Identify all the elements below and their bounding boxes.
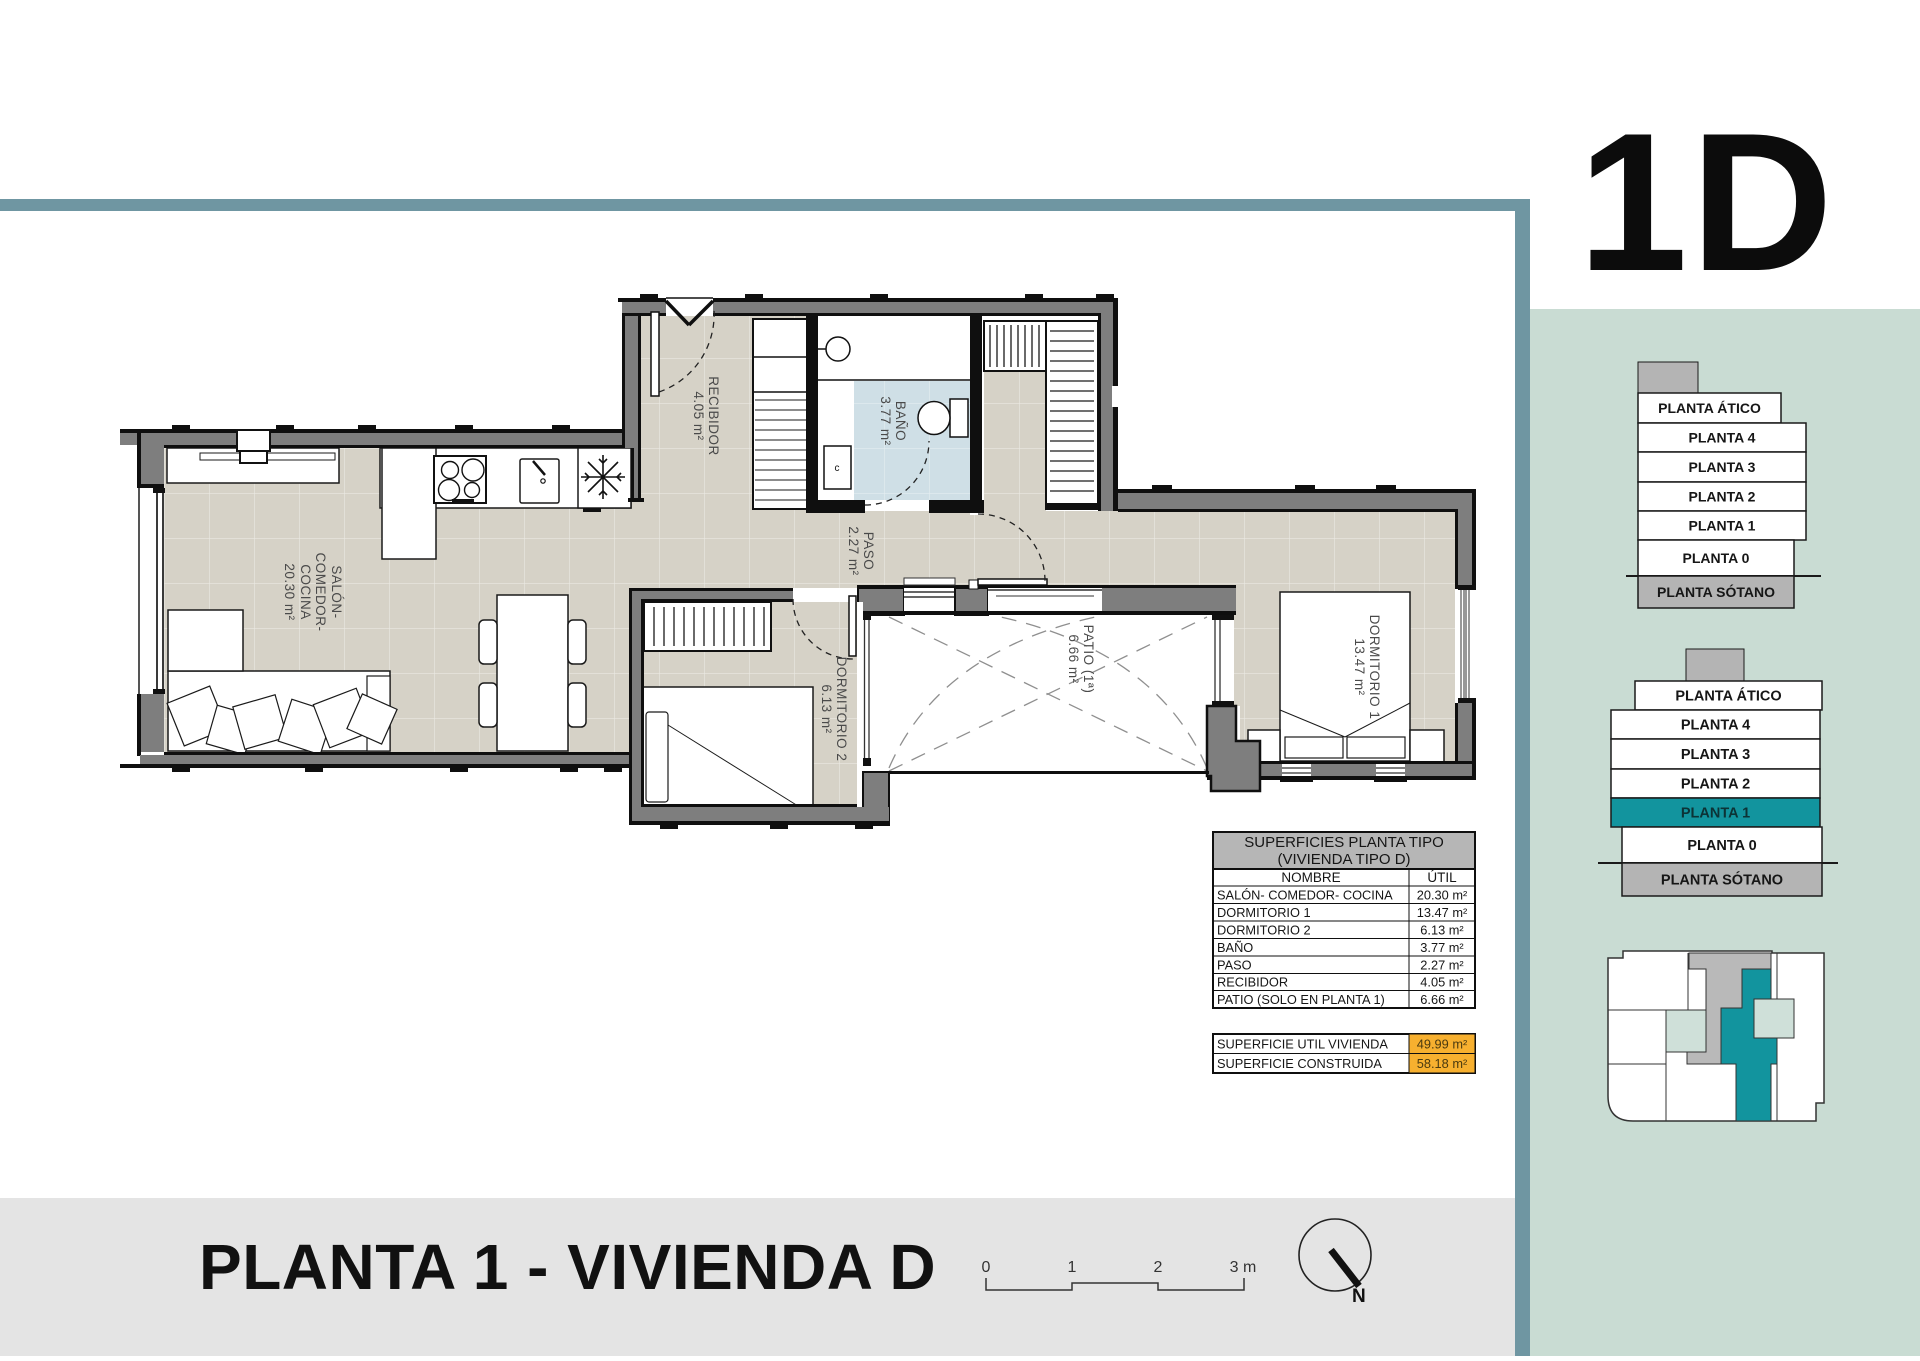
svg-text:PLANTA 1 - VIVIENDA D: PLANTA 1 - VIVIENDA D xyxy=(199,1231,936,1303)
svg-text:PLANTA 4: PLANTA 4 xyxy=(1681,718,1750,734)
svg-text:(VIVIENDA TIPO D): (VIVIENDA TIPO D) xyxy=(1277,851,1410,868)
svg-text:0: 0 xyxy=(982,1259,991,1276)
svg-text:PLANTA 0: PLANTA 0 xyxy=(1687,838,1756,854)
svg-text:RECIBIDOR: RECIBIDOR xyxy=(1217,975,1288,990)
svg-text:PLANTA 1: PLANTA 1 xyxy=(1681,806,1750,822)
svg-text:PLANTA SÓTANO: PLANTA SÓTANO xyxy=(1661,871,1783,889)
svg-text:PATIO (SOLO EN PLANTA 1): PATIO (SOLO EN PLANTA 1) xyxy=(1217,992,1385,1007)
svg-text:SUPERFICIES PLANTA TIPO: SUPERFICIES PLANTA TIPO xyxy=(1244,834,1444,851)
svg-text:49.99 m²: 49.99 m² xyxy=(1417,1037,1468,1052)
svg-text:PASO2.27 m²: PASO2.27 m² xyxy=(846,526,876,575)
svg-text:SALÓN- COMEDOR- COCINA: SALÓN- COMEDOR- COCINA xyxy=(1217,888,1393,903)
svg-text:DORMITORIO 2: DORMITORIO 2 xyxy=(1217,923,1311,938)
svg-text:PLANTA 2: PLANTA 2 xyxy=(1689,489,1756,505)
svg-text:ÚTIL: ÚTIL xyxy=(1427,870,1457,885)
svg-text:PLANTA 0: PLANTA 0 xyxy=(1683,550,1750,566)
svg-text:PLANTA ÁTICO: PLANTA ÁTICO xyxy=(1658,400,1761,416)
svg-text:BAÑO: BAÑO xyxy=(1217,940,1253,955)
svg-text:6.66 m²: 6.66 m² xyxy=(1420,992,1464,1007)
svg-text:20.30 m²: 20.30 m² xyxy=(1417,888,1468,903)
svg-text:PLANTA 2: PLANTA 2 xyxy=(1681,777,1750,793)
svg-text:2: 2 xyxy=(1154,1259,1163,1276)
svg-text:PLANTA ÁTICO: PLANTA ÁTICO xyxy=(1675,688,1781,705)
svg-text:58.18 m²: 58.18 m² xyxy=(1417,1056,1468,1071)
svg-text:4.05 m²: 4.05 m² xyxy=(1420,975,1464,990)
svg-text:PLANTA 3: PLANTA 3 xyxy=(1681,747,1750,763)
svg-text:1D: 1D xyxy=(1578,92,1836,312)
svg-text:NOMBRE: NOMBRE xyxy=(1281,870,1340,885)
svg-text:DORMITORIO 1: DORMITORIO 1 xyxy=(1217,905,1311,920)
svg-text:SUPERFICIE CONSTRUIDA: SUPERFICIE CONSTRUIDA xyxy=(1217,1056,1382,1071)
svg-text:N: N xyxy=(1352,1286,1366,1307)
svg-text:3 m: 3 m xyxy=(1230,1259,1257,1276)
svg-text:PLANTA 3: PLANTA 3 xyxy=(1689,459,1756,475)
svg-text:BAÑO3.77 m²: BAÑO3.77 m² xyxy=(878,396,908,445)
svg-text:PATIO (1ª)6.66 m²: PATIO (1ª)6.66 m² xyxy=(1066,625,1096,694)
svg-text:c: c xyxy=(835,463,840,474)
svg-text:1: 1 xyxy=(1068,1259,1077,1276)
svg-text:13.47 m²: 13.47 m² xyxy=(1417,905,1468,920)
svg-text:6.13 m²: 6.13 m² xyxy=(1420,923,1464,938)
svg-text:PLANTA 4: PLANTA 4 xyxy=(1689,430,1756,446)
svg-text:3.77 m²: 3.77 m² xyxy=(1420,940,1464,955)
svg-text:PLANTA 1: PLANTA 1 xyxy=(1689,518,1756,534)
svg-text:PLANTA SÓTANO: PLANTA SÓTANO xyxy=(1657,583,1775,600)
svg-text:2.27 m²: 2.27 m² xyxy=(1420,958,1464,973)
svg-text:PASO: PASO xyxy=(1217,958,1252,973)
svg-text:SUPERFICIE UTIL VIVIENDA: SUPERFICIE UTIL VIVIENDA xyxy=(1217,1037,1388,1052)
